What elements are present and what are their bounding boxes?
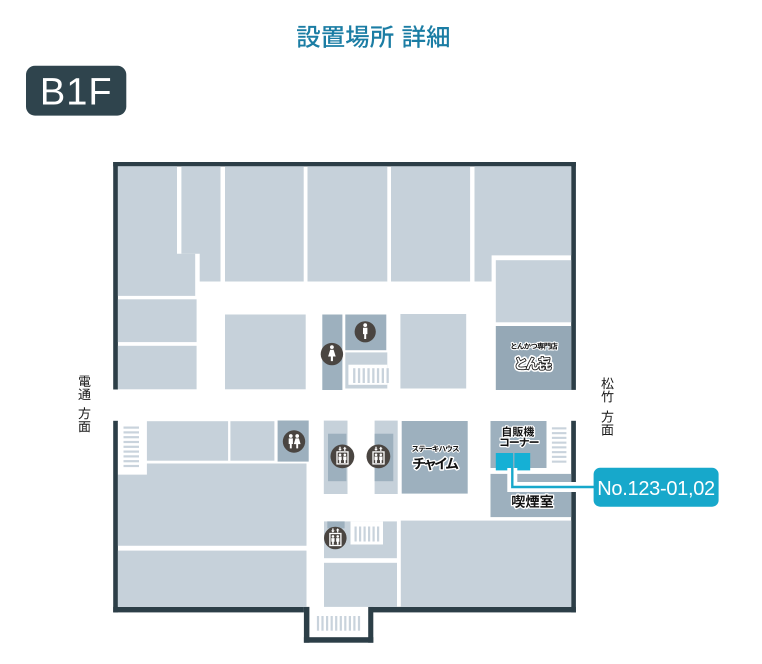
svg-text:No.123-01,02: No.123-01,02 [597, 478, 715, 500]
svg-text:B1F: B1F [40, 72, 113, 114]
